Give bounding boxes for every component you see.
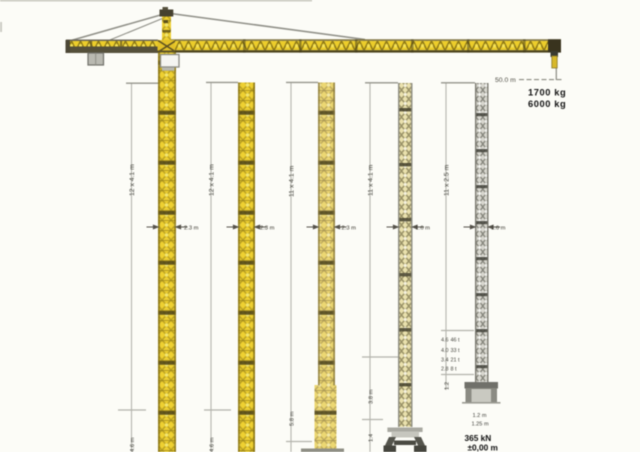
svg-text:4.6: 4.6 (441, 338, 449, 344)
svg-text:4.6 m: 4.6 m (210, 437, 216, 452)
svg-text:33 t: 33 t (451, 348, 460, 354)
svg-text:1.4: 1.4 (369, 433, 375, 442)
svg-text:11 x 4.1 m: 11 x 4.1 m (368, 164, 375, 196)
svg-text:2.8: 2.8 (441, 367, 449, 373)
svg-text:21 t: 21 t (451, 358, 460, 364)
svg-text:1.25 m: 1.25 m (472, 422, 489, 428)
svg-text:1.6 m: 1.6 m (416, 225, 431, 231)
svg-text:1700 kg: 1700 kg (528, 87, 566, 97)
svg-text:1.6 m: 1.6 m (491, 225, 506, 231)
svg-text:12 x 4.1 m: 12 x 4.1 m (129, 164, 136, 196)
svg-text:3.4: 3.4 (441, 358, 449, 364)
svg-text:3.8 m: 3.8 m (369, 389, 375, 404)
svg-text:5.8 m: 5.8 m (290, 411, 296, 426)
svg-text:2.3 m: 2.3 m (260, 225, 275, 231)
svg-text:12 x 4.1 m: 12 x 4.1 m (209, 164, 216, 196)
svg-text:4.0: 4.0 (441, 348, 449, 354)
svg-text:46 t: 46 t (451, 338, 460, 344)
svg-text:2.3 m: 2.3 m (184, 225, 199, 231)
svg-text:2.3 m: 2.3 m (342, 225, 357, 231)
svg-text:±0,00 m: ±0,00 m (468, 443, 498, 452)
svg-text:11 x 2.5 m: 11 x 2.5 m (444, 164, 451, 196)
svg-text:50.0 m: 50.0 m (495, 77, 516, 84)
svg-text:1.2 m: 1.2 m (473, 413, 487, 419)
svg-text:11 x 4.1 m: 11 x 4.1 m (289, 165, 296, 197)
svg-text:8 t: 8 t (451, 367, 457, 373)
svg-text:6000 kg: 6000 kg (528, 99, 566, 109)
svg-text:4.6 m: 4.6 m (130, 437, 136, 452)
svg-text:1.2: 1.2 (445, 382, 451, 390)
